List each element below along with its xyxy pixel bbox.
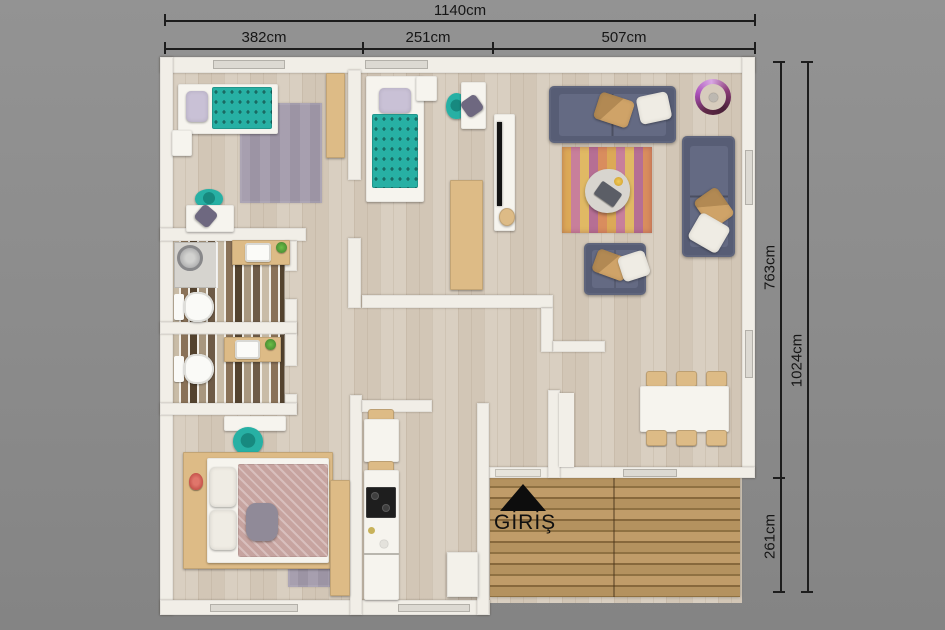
window-bedroom2-top bbox=[365, 60, 428, 69]
bathroom1-sink bbox=[245, 243, 271, 262]
window-dining-porch bbox=[623, 469, 677, 477]
dimension-segment-2: 251cm bbox=[378, 29, 478, 46]
wall-hall-right-lower bbox=[348, 238, 361, 308]
wall-right bbox=[742, 57, 755, 478]
bedroom3-pillow bbox=[210, 510, 236, 550]
tv-stool bbox=[499, 208, 515, 226]
kitchen-island bbox=[447, 552, 478, 597]
bathroom2-plant bbox=[265, 339, 276, 350]
bedroom1-pillow bbox=[186, 91, 208, 122]
coffee-table-fruit bbox=[614, 177, 623, 186]
wall-kitchen-right bbox=[477, 403, 489, 615]
toilet1-bowl bbox=[184, 292, 214, 322]
wall-bath2-bottom bbox=[160, 403, 297, 415]
dimension-line-segments bbox=[165, 48, 755, 50]
cooktop-burner bbox=[371, 492, 379, 500]
wall-kitchen-left bbox=[350, 395, 362, 615]
floor-lamp-center bbox=[709, 93, 718, 102]
wall-entry-step-vertical bbox=[541, 308, 553, 352]
dimension-line-total-depth bbox=[807, 62, 809, 593]
dim-tick bbox=[801, 591, 813, 593]
bedroom3-wardrobe bbox=[330, 480, 350, 596]
dim-tick bbox=[773, 477, 785, 479]
dining-table bbox=[640, 386, 729, 432]
dimension-porch-depth: 261cm bbox=[762, 507, 779, 567]
kitchen-table bbox=[364, 419, 399, 462]
window-living-right bbox=[745, 150, 753, 205]
dimension-line-house-depth bbox=[780, 62, 782, 478]
dining-chair bbox=[706, 430, 727, 446]
entrance-label: GİRİŞ bbox=[494, 511, 556, 535]
bedroom2-nightstand bbox=[416, 76, 437, 101]
dimension-total-depth: 1024cm bbox=[789, 326, 806, 396]
wall-bath2-right-a bbox=[285, 334, 297, 366]
wall-bedroom1-right-upper bbox=[348, 70, 361, 180]
dimension-segment-1: 382cm bbox=[214, 29, 314, 46]
wall-bath-divider bbox=[160, 322, 297, 334]
bedroom2-sideboard bbox=[450, 180, 483, 290]
window-kitchen-bottom bbox=[398, 604, 470, 612]
wall-living-bottom bbox=[362, 295, 553, 308]
dim-tick bbox=[773, 591, 785, 593]
dim-tick bbox=[362, 42, 364, 54]
shower-head-icon bbox=[177, 245, 203, 271]
entrance-door-threshold bbox=[495, 469, 541, 477]
bedroom3-desk-chair bbox=[233, 427, 263, 455]
kitchen-jar bbox=[368, 527, 375, 534]
dining-chair bbox=[646, 430, 667, 446]
dimension-line-total-width bbox=[165, 20, 755, 22]
dining-chair bbox=[676, 371, 697, 387]
bedroom2-blanket bbox=[372, 114, 418, 188]
dim-tick bbox=[164, 14, 166, 26]
dim-tick bbox=[164, 42, 166, 54]
wall-entry-step-horizontal bbox=[553, 341, 605, 352]
window-bedroom3-bottom bbox=[210, 604, 298, 612]
dim-tick bbox=[492, 42, 494, 54]
shower-glass bbox=[216, 242, 218, 288]
dim-tick bbox=[754, 42, 756, 54]
dim-tick bbox=[773, 61, 785, 63]
bathroom2-sink bbox=[235, 340, 260, 359]
bedroom1-blanket bbox=[212, 87, 272, 129]
dimension-segment-3: 507cm bbox=[574, 29, 674, 46]
fridge-divider bbox=[364, 553, 399, 555]
dimension-house-depth: 763cm bbox=[762, 238, 779, 298]
bedroom3-cushion bbox=[246, 503, 278, 541]
dining-chair bbox=[646, 371, 667, 387]
dimension-line-porch-depth bbox=[780, 478, 782, 593]
dim-tick bbox=[754, 14, 756, 26]
bedroom1-wardrobe bbox=[326, 73, 345, 158]
cooktop bbox=[366, 487, 396, 518]
bathroom1-plant bbox=[276, 242, 287, 253]
entrance-arrow-icon bbox=[500, 484, 546, 511]
bedroom3-pillow bbox=[210, 467, 236, 507]
dimension-total-width: 1140cm bbox=[410, 2, 510, 19]
window-dining-right bbox=[745, 330, 753, 378]
dim-tick bbox=[801, 61, 813, 63]
dining-chair bbox=[676, 430, 697, 446]
entrance-door-leaf bbox=[559, 393, 574, 467]
kitchen-bowl bbox=[380, 540, 388, 548]
tv bbox=[497, 122, 502, 206]
bedroom3-headboard-lamp bbox=[189, 473, 203, 490]
toilet2-bowl bbox=[184, 354, 214, 384]
window-bedroom1-top bbox=[213, 60, 285, 69]
dining-chair bbox=[706, 371, 727, 387]
cooktop-burner bbox=[382, 504, 390, 512]
toilet1-tank bbox=[174, 294, 184, 320]
shower bbox=[174, 242, 218, 288]
floorplan-canvas: 1140cm 382cm 251cm 507cm 763cm 1024cm 26… bbox=[0, 0, 945, 630]
toilet2-tank bbox=[174, 356, 184, 382]
bedroom1-nightstand bbox=[172, 130, 192, 156]
bedroom2-pillow bbox=[379, 88, 411, 113]
